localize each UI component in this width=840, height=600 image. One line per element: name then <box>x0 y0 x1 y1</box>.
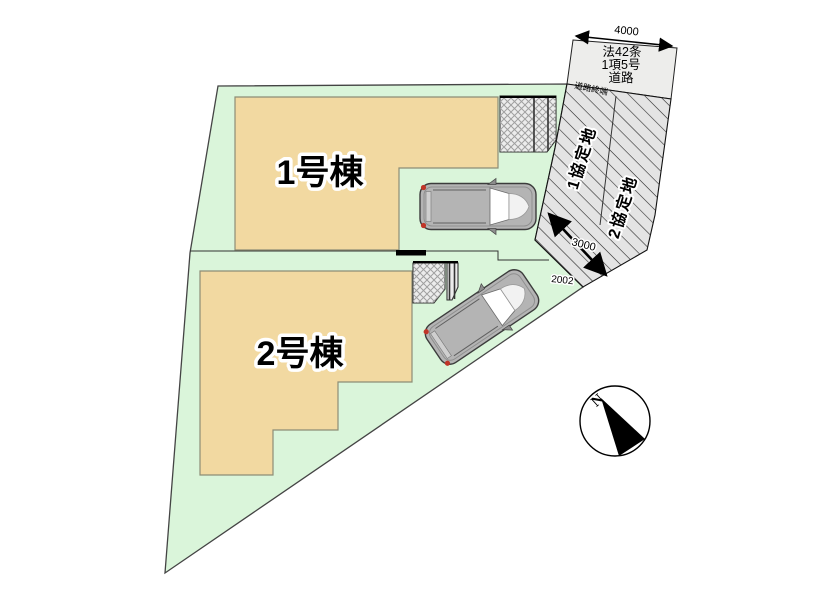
dim-4000-label: 4000 <box>614 24 640 38</box>
road-sign-line3: 道路 <box>608 70 634 85</box>
car-1 <box>420 179 536 235</box>
lot1-approach-patch <box>500 96 556 152</box>
site-plan-canvas: 法42条 1項5号 道路 1号棟 2号棟 1協定地 2協定地 4000 道路 <box>0 0 840 600</box>
compass: N <box>580 386 650 456</box>
building-1-label: 1号棟 <box>277 154 365 192</box>
building-2-label: 2号棟 <box>257 335 345 373</box>
lot2-approach-patch <box>413 262 458 303</box>
road-sign-line1: 法42条 <box>603 45 642 59</box>
road-sign-line2: 1項5号 <box>602 58 641 72</box>
site-plan-page: 法42条 1項5号 道路 1号棟 2号棟 1協定地 2協定地 4000 道路 <box>0 0 840 600</box>
lot1-porch-bar <box>396 250 426 256</box>
